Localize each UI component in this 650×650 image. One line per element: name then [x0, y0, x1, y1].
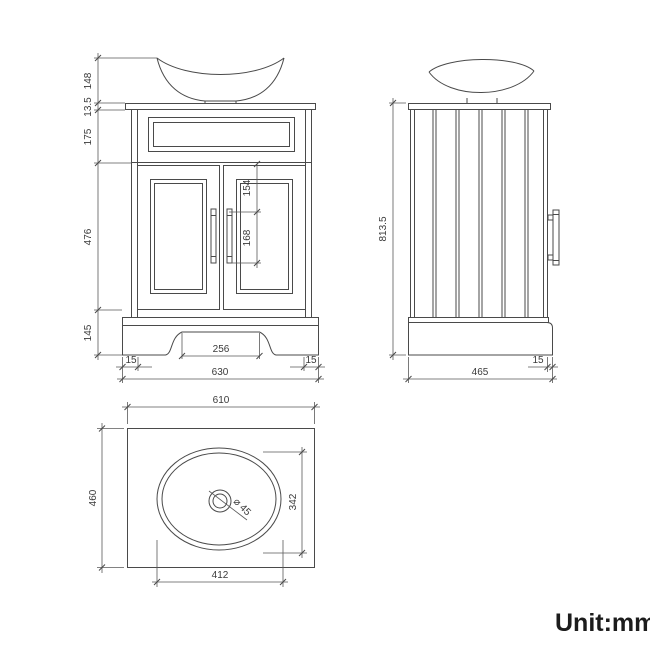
front-view: 148 13.5 175 476 145 154 168 256 15 15 6…: [83, 53, 325, 383]
dim-plinth-arch-width: 256: [213, 344, 230, 355]
dim-overall-height: 813.5: [378, 216, 389, 241]
technical-drawing-svg: 148 13.5 175 476 145 154 168 256 15 15 6…: [0, 0, 650, 650]
side-door-handle: [548, 210, 559, 265]
dim-overall-width: 630: [212, 367, 229, 378]
dim-door-height: 476: [83, 228, 94, 245]
dim-drain-diameter: ⌀ 45: [231, 496, 253, 518]
front-left-door-handle: [211, 209, 216, 263]
side-beadboard-lines: [433, 110, 528, 317]
front-top-panel-inner: [154, 123, 290, 147]
dim-worktop-thickness: 13.5: [83, 97, 94, 117]
side-cabinet: [411, 110, 548, 318]
front-dimension-lines: [94, 53, 325, 383]
unit-label: Unit:mm: [555, 609, 650, 637]
front-cabinet: [132, 110, 312, 318]
dim-plinth-inset-right: 15: [305, 355, 317, 366]
front-basin: [157, 58, 284, 104]
front-worktop: [126, 104, 316, 110]
dim-worktop-width: 610: [213, 395, 230, 406]
top-dimension-ticks: [99, 404, 318, 585]
dim-basin-length: 412: [212, 570, 229, 581]
dim-worktop-depth: 460: [88, 489, 99, 506]
vanity-dimension-drawing: 148 13.5 175 476 145 154 168 256 15 15 6…: [0, 0, 650, 650]
side-worktop: [409, 104, 551, 110]
dim-overall-depth: 465: [472, 367, 489, 378]
front-right-door: [224, 166, 306, 310]
dim-plinth-inset-left: 15: [125, 355, 137, 366]
side-view: 813.5 15 465: [378, 59, 559, 383]
top-worktop-outline: [128, 429, 315, 568]
dim-basin-height: 148: [83, 72, 94, 89]
dim-handle-top-offset: 154: [242, 179, 253, 196]
front-cabinet-stiles: [138, 110, 306, 317]
side-dimension-labels: 813.5 15 465: [378, 216, 544, 378]
dim-side-plinth-inset: 15: [532, 355, 544, 366]
top-view: 610 460 342 412 ⌀ 45: [88, 395, 320, 587]
front-left-door-panel-inner: [155, 184, 203, 290]
dim-handle-length: 168: [242, 229, 253, 246]
front-left-door-panel-outer: [151, 180, 207, 294]
side-basin: [429, 59, 534, 104]
front-cabinet-body: [132, 110, 312, 318]
top-dimension-lines: [97, 402, 320, 587]
front-left-door: [138, 166, 220, 310]
dim-top-panel-height: 175: [83, 128, 94, 145]
side-plinth: [409, 318, 553, 356]
dim-plinth-height: 145: [83, 324, 94, 341]
dim-basin-depth: 342: [288, 493, 299, 510]
front-dimension-ticks: [95, 55, 322, 382]
front-right-door-handle: [227, 209, 232, 263]
